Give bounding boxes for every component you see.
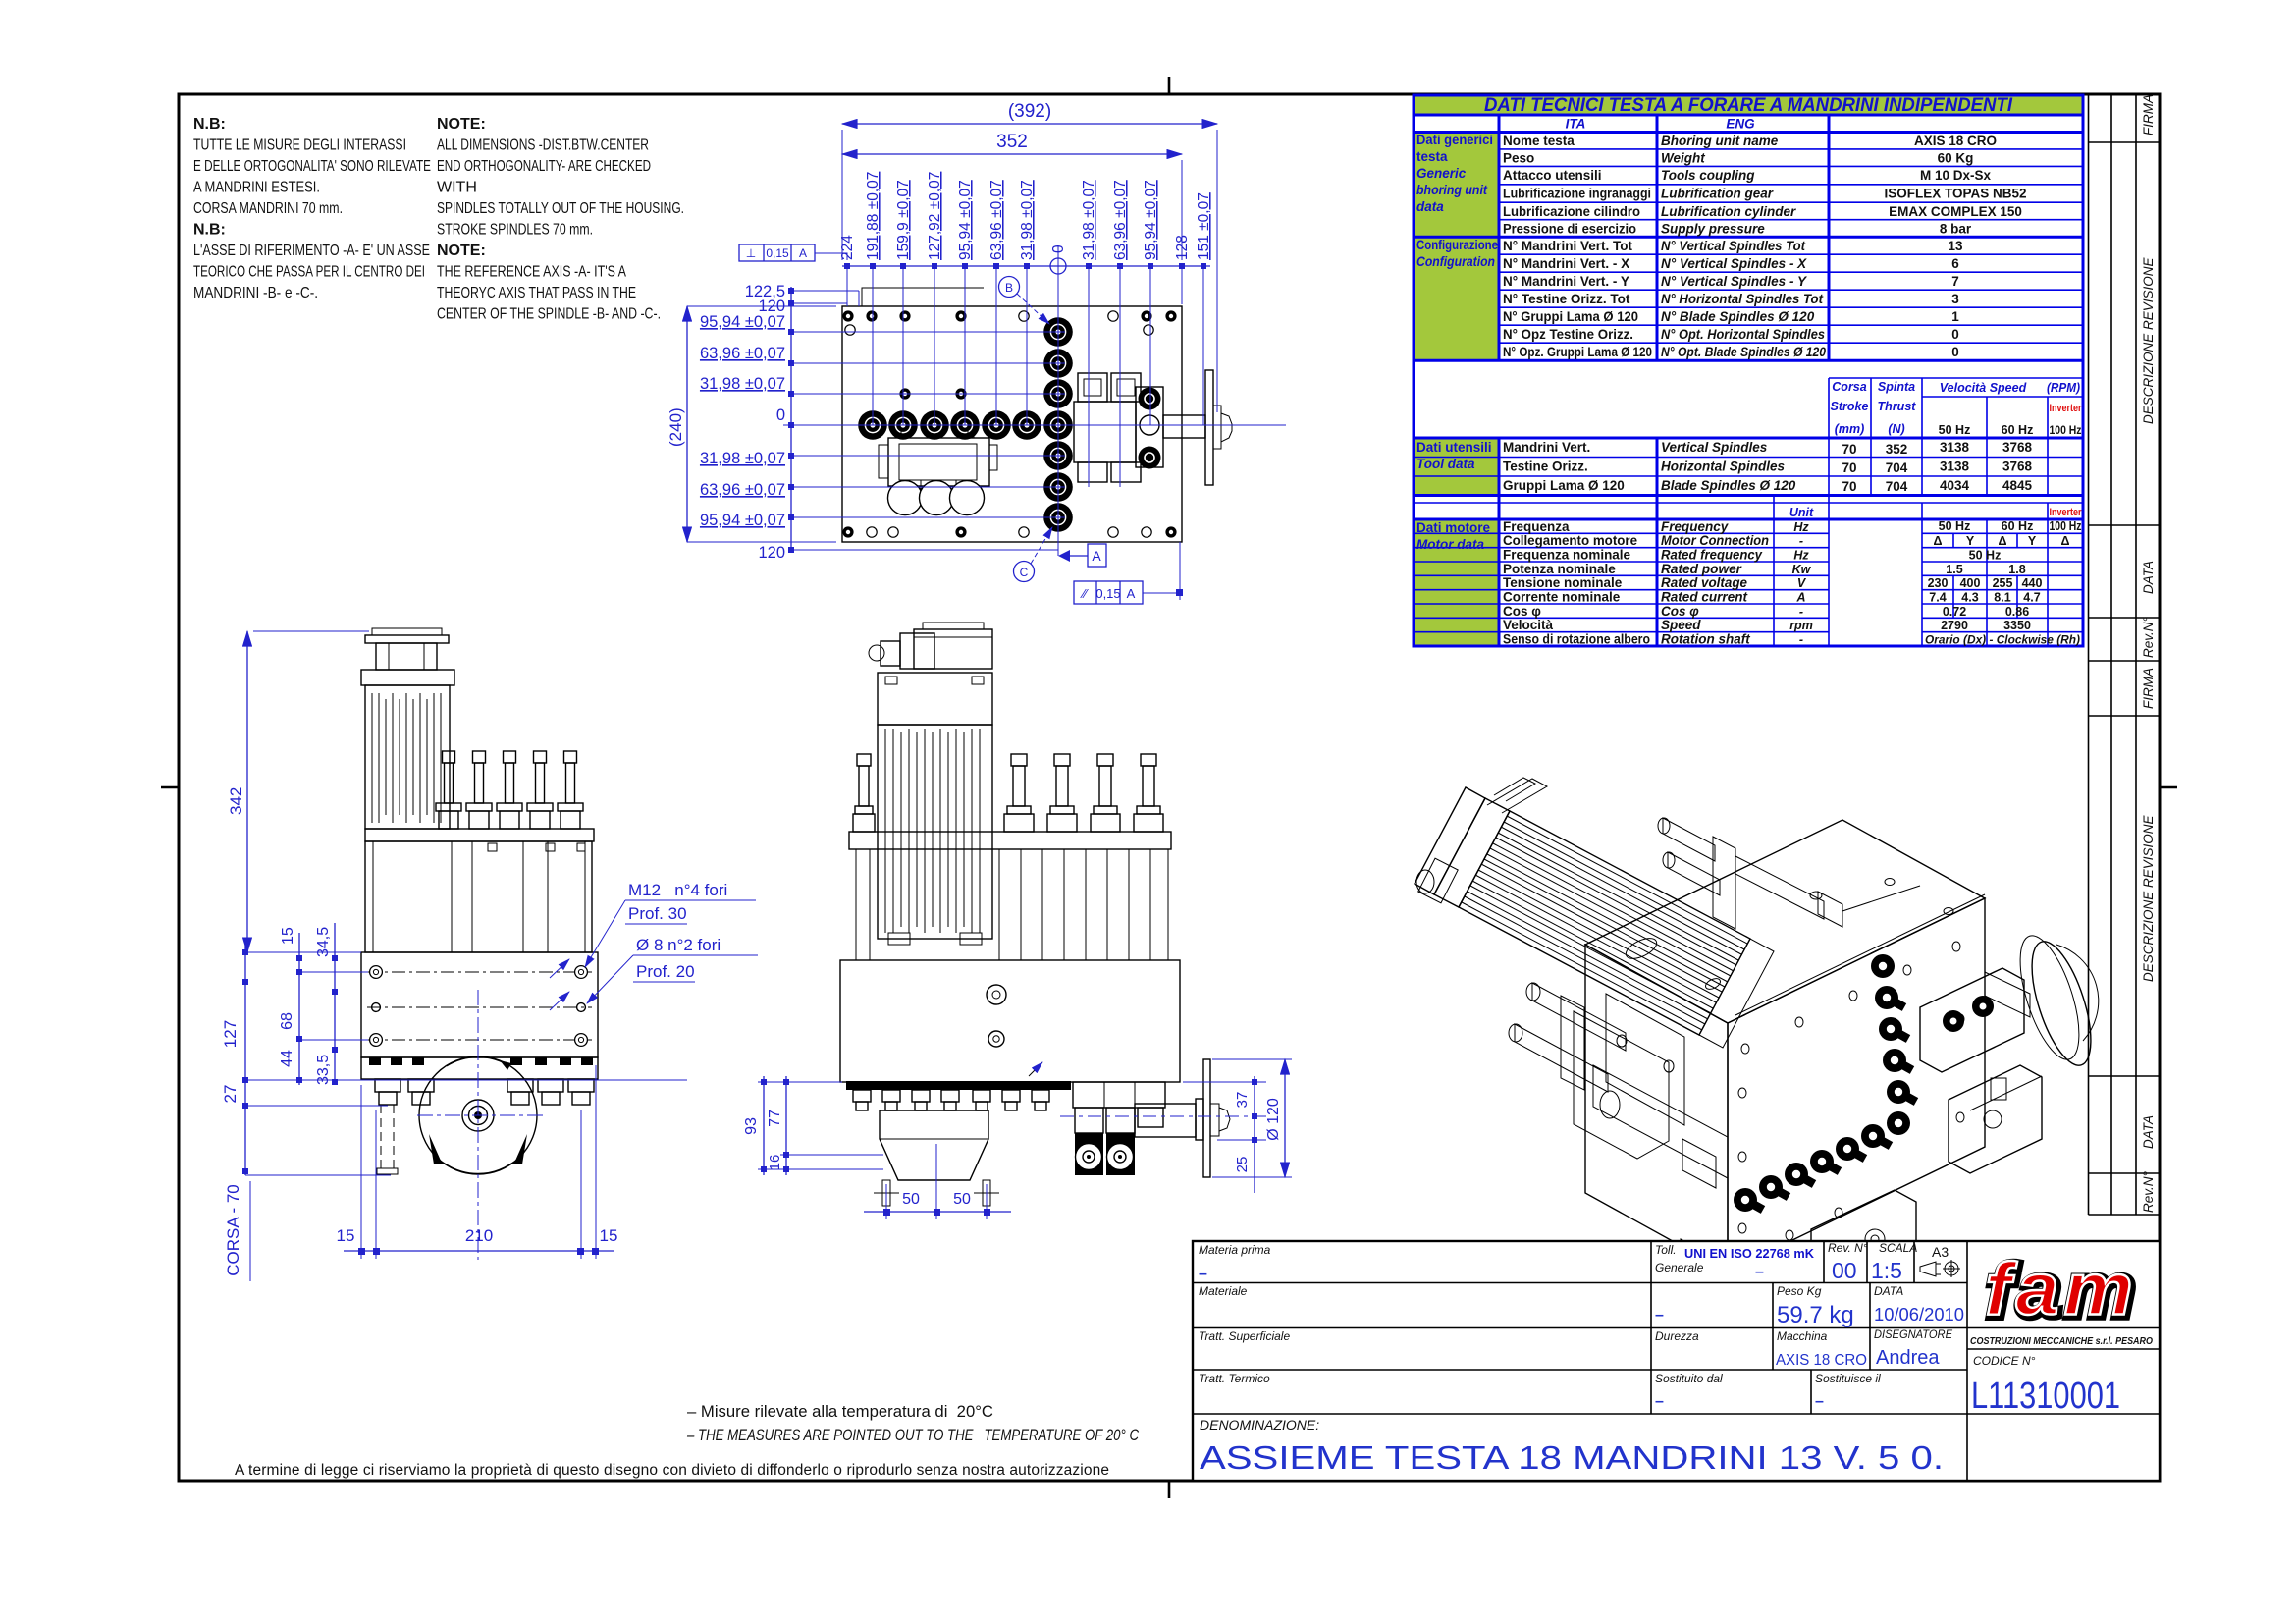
svg-text:Potenza nominale: Potenza nominale [1503, 562, 1616, 576]
svg-text:Rev.N°: Rev.N° [2141, 616, 2156, 658]
svg-text:Attacco utensili: Attacco utensili [1503, 168, 1602, 183]
svg-text:Supply pressure: Supply pressure [1661, 222, 1765, 237]
svg-text:4845: 4845 [2002, 478, 2033, 493]
svg-text:Ø 8 n°2 fori: Ø 8 n°2 fori [636, 936, 721, 954]
svg-text:4034: 4034 [1940, 478, 1970, 493]
svg-text:Y: Y [1966, 534, 1975, 548]
svg-text:0.86: 0.86 [2005, 605, 2029, 619]
svg-text:CORSA MANDRINI 70 mm.: CORSA MANDRINI 70 mm. [193, 200, 343, 217]
svg-text:3768: 3768 [2002, 440, 2033, 455]
svg-text:10/06/2010: 10/06/2010 [1874, 1305, 1964, 1325]
svg-text:Thrust: Thrust [1878, 400, 1917, 413]
svg-text:352: 352 [1886, 442, 1908, 457]
svg-text:⊥: ⊥ [746, 246, 756, 260]
svg-text:N° Mandrini Vert. Tot: N° Mandrini Vert. Tot [1503, 239, 1633, 253]
svg-text:0: 0 [1951, 345, 1959, 359]
svg-text:L'ASSE DI RIFERIMENTO -A- E' U: L'ASSE DI RIFERIMENTO -A- E' UN ASSE [193, 243, 430, 259]
svg-text:Sostituito dal: Sostituito dal [1655, 1372, 1723, 1385]
svg-text:00: 00 [1832, 1258, 1857, 1283]
svg-text:63,96 ±0,07: 63,96 ±0,07 [700, 345, 785, 362]
svg-text:Δ: Δ [2061, 534, 2070, 548]
svg-text:8.1: 8.1 [1994, 591, 2010, 605]
svg-text:70: 70 [1842, 479, 1856, 494]
svg-text:Y: Y [2028, 534, 2037, 548]
svg-text:N° Gruppi Lama Ø 120: N° Gruppi Lama Ø 120 [1503, 309, 1638, 324]
svg-text:Inverter: Inverter [2050, 507, 2083, 518]
svg-text:THE REFERENCE AXIS -A- IT'S A: THE REFERENCE AXIS -A- IT'S A [437, 264, 626, 281]
svg-text:Frequenza: Frequenza [1503, 519, 1570, 534]
svg-text:159,9 ±0,07: 159,9 ±0,07 [895, 180, 912, 260]
svg-text:Δ: Δ [1999, 534, 2007, 548]
svg-text:31,98 ±0,07: 31,98 ±0,07 [700, 450, 785, 467]
svg-text:100 Hz: 100 Hz [2050, 519, 2082, 533]
svg-text:CENTER OF THE SPINDLE -B- AND: CENTER OF THE SPINDLE -B- AND -C-. [437, 306, 661, 323]
svg-text:0,15: 0,15 [1095, 586, 1120, 601]
svg-text:N° Opz Testine Orizz.: N° Opz Testine Orizz. [1503, 327, 1633, 342]
svg-text:Motor data: Motor data [1416, 537, 1484, 552]
svg-text:63,96 ±0,07: 63,96 ±0,07 [1112, 180, 1129, 260]
svg-text:-: - [1799, 534, 1803, 548]
svg-text:(mm): (mm) [1835, 422, 1865, 436]
svg-text:60 Hz: 60 Hz [2002, 423, 2034, 437]
svg-text:Rotation shaft: Rotation shaft [1661, 632, 1750, 647]
svg-text:210: 210 [465, 1226, 493, 1245]
svg-text:Prof. 30: Prof. 30 [628, 904, 687, 923]
svg-text:DESCRIZIONE REVISIONE: DESCRIZIONE REVISIONE [2141, 814, 2156, 982]
svg-text:Configuration: Configuration [1416, 254, 1495, 269]
svg-text:Dati motore: Dati motore [1416, 520, 1491, 535]
svg-text:77: 77 [767, 1110, 783, 1127]
svg-text:95,94 ±0,07: 95,94 ±0,07 [700, 313, 785, 331]
svg-text:Rev. N°: Rev. N° [1828, 1241, 1868, 1255]
svg-text:–: – [1655, 1307, 1664, 1324]
svg-text:ITA: ITA [1566, 117, 1586, 132]
svg-text:Velocità Speed: Velocità Speed [1940, 381, 2027, 395]
svg-text:Inverter: Inverter [2050, 403, 2083, 414]
svg-text:Lubrification gear: Lubrification gear [1661, 187, 1774, 201]
svg-text:–: – [1815, 1393, 1824, 1410]
svg-text:Peso Kg: Peso Kg [1777, 1284, 1822, 1298]
svg-text:50 Hz: 50 Hz [1969, 549, 2002, 563]
svg-text:8 bar: 8 bar [1940, 222, 1972, 237]
svg-text:95,94 ±0,07: 95,94 ±0,07 [700, 512, 785, 529]
svg-text:Mandrini Vert.: Mandrini Vert. [1503, 440, 1590, 455]
svg-text:Ø 120: Ø 120 [1265, 1098, 1282, 1141]
svg-text:(392): (392) [1008, 101, 1051, 122]
svg-text:0: 0 [776, 406, 785, 424]
svg-text:N° Vertical Spindles Tot: N° Vertical Spindles Tot [1661, 239, 1805, 253]
svg-text:AXIS 18 CRO: AXIS 18 CRO [1914, 134, 1997, 148]
svg-text:3: 3 [1951, 292, 1959, 306]
svg-text:3138: 3138 [1940, 440, 1970, 455]
svg-text:ISOFLEX TOPAS NB52: ISOFLEX TOPAS NB52 [1884, 187, 2026, 201]
svg-text:Lubrificazione cilindro: Lubrificazione cilindro [1503, 204, 1640, 219]
svg-text:Tratt. Superficiale: Tratt. Superficiale [1199, 1329, 1290, 1343]
svg-text:A: A [1127, 586, 1136, 601]
svg-text:–: – [1655, 1393, 1664, 1410]
svg-text:15: 15 [337, 1226, 355, 1245]
svg-text:DATA: DATA [1874, 1284, 1903, 1298]
svg-text:68: 68 [279, 1012, 295, 1030]
svg-text:0: 0 [1050, 244, 1067, 253]
svg-text:-: - [1799, 633, 1803, 647]
svg-text:151 ±0,07: 151 ±0,07 [1196, 192, 1212, 260]
svg-text:34,5: 34,5 [315, 927, 332, 957]
svg-text:Andrea: Andrea [1876, 1347, 1940, 1369]
svg-text:Generale: Generale [1655, 1261, 1704, 1274]
svg-text:Rated voltage: Rated voltage [1661, 575, 1747, 590]
svg-text:ASSIEME TESTA 18 MANDRINI 13 V: ASSIEME TESTA 18 MANDRINI 13 V. 5 0. [1200, 1439, 1944, 1476]
svg-text:4.7: 4.7 [2023, 591, 2040, 605]
svg-text:0: 0 [1951, 327, 1959, 342]
svg-text:Kw: Kw [1792, 563, 1812, 576]
svg-text:MANDRINI -B- e -C-.: MANDRINI -B- e -C-. [193, 285, 318, 301]
svg-text:50: 50 [902, 1191, 920, 1208]
svg-text:100 Hz: 100 Hz [2050, 425, 2082, 437]
svg-text:DENOMINAZIONE:: DENOMINAZIONE: [1200, 1417, 1319, 1433]
svg-text:60 Hz: 60 Hz [2002, 519, 2034, 533]
svg-text:B: B [1005, 281, 1013, 295]
svg-text:Tools coupling: Tools coupling [1661, 168, 1755, 183]
svg-text:6: 6 [1951, 256, 1959, 271]
svg-text:Dati generici: Dati generici [1416, 133, 1493, 147]
svg-text:testa: testa [1416, 149, 1448, 164]
svg-text:WITH: WITH [437, 180, 477, 196]
svg-text:Bhoring unit name: Bhoring unit name [1661, 134, 1779, 148]
svg-text:13: 13 [1948, 239, 1963, 253]
svg-text:255: 255 [1993, 576, 2013, 590]
svg-text:Materiale: Materiale [1199, 1284, 1248, 1298]
svg-text:A termine di legge ci riservia: A termine di legge ci riserviamo la prop… [235, 1462, 1109, 1479]
svg-text:95,94 ±0,07: 95,94 ±0,07 [1143, 180, 1159, 260]
svg-text:Vertical Spindles: Vertical Spindles [1661, 440, 1768, 455]
svg-text:37: 37 [1234, 1092, 1251, 1109]
svg-text:END ORTHOGONALITY- ARE CHECKED: END ORTHOGONALITY- ARE CHECKED [437, 158, 651, 175]
svg-text:Sostituisce il: Sostituisce il [1815, 1372, 1881, 1385]
svg-text:rpm: rpm [1789, 619, 1813, 632]
svg-text:Rated power: Rated power [1661, 562, 1742, 576]
svg-text:N.B:: N.B: [193, 116, 226, 133]
svg-text:A MANDRINI ESTESI.: A MANDRINI ESTESI. [193, 180, 320, 196]
svg-text:bhoring unit: bhoring unit [1416, 183, 1487, 197]
svg-text:TUTTE LE MISURE DEGLI INTERASS: TUTTE LE MISURE DEGLI INTERASSI [193, 137, 406, 154]
svg-text:N° Mandrini Vert. - X: N° Mandrini Vert. - X [1503, 256, 1629, 271]
svg-text:A3: A3 [1932, 1244, 1949, 1260]
svg-text:N° Opt. Blade Spindles Ø 120: N° Opt. Blade Spindles Ø 120 [1661, 345, 1826, 359]
svg-text:2790: 2790 [1941, 619, 1968, 632]
svg-text:191,88 ±0,07: 191,88 ±0,07 [865, 172, 881, 260]
svg-text:ALL DIMENSIONS -DIST.BTW.CENTE: ALL DIMENSIONS -DIST.BTW.CENTER [437, 137, 649, 154]
svg-text:Spinta: Spinta [1878, 380, 1915, 394]
svg-text:DISEGNATORE: DISEGNATORE [1874, 1327, 1953, 1341]
svg-text:–: – [1755, 1264, 1764, 1280]
svg-text:M12 n°4 fori: M12 n°4 fori [628, 881, 727, 899]
svg-text:Corsa: Corsa [1832, 380, 1866, 394]
svg-text:L11310001: L11310001 [1971, 1376, 2120, 1417]
svg-text:DATA: DATA [2141, 1115, 2156, 1149]
svg-text:Dati utensili: Dati utensili [1416, 440, 1492, 455]
svg-text:Senso di rotazione albero: Senso di rotazione albero [1503, 632, 1650, 647]
svg-text:EMAX COMPLEX 150: EMAX COMPLEX 150 [1889, 204, 2022, 219]
svg-text:25: 25 [1234, 1157, 1251, 1173]
svg-text:0.72: 0.72 [1943, 605, 1966, 619]
svg-text:SPINDLES TOTALLY OUT OF THE HO: SPINDLES TOTALLY OUT OF THE HOUSING. [437, 200, 684, 217]
svg-text:Peso: Peso [1503, 151, 1534, 166]
svg-text:70: 70 [1842, 460, 1856, 475]
svg-text:data: data [1416, 199, 1444, 214]
svg-text:63,96 ±0,07: 63,96 ±0,07 [988, 180, 1005, 260]
svg-text:Frequency: Frequency [1661, 519, 1730, 534]
svg-text:Rated frequency: Rated frequency [1661, 548, 1763, 563]
svg-text:Durezza: Durezza [1655, 1329, 1699, 1343]
svg-text:DESCRIZIONE REVISIONE: DESCRIZIONE REVISIONE [2141, 256, 2156, 424]
svg-text:Testine Orizz.: Testine Orizz. [1503, 460, 1588, 474]
svg-text:C: C [1020, 566, 1029, 579]
svg-text:Velocità: Velocità [1503, 618, 1554, 632]
svg-text:15: 15 [600, 1226, 618, 1245]
svg-text:Toll.: Toll. [1655, 1243, 1677, 1257]
svg-text:(RPM): (RPM) [2047, 381, 2080, 395]
svg-text:Tool data: Tool data [1416, 457, 1475, 471]
svg-text:–: – [1199, 1266, 1207, 1282]
svg-text:Gruppi Lama Ø 120: Gruppi Lama Ø 120 [1503, 478, 1625, 493]
svg-text:-: - [1799, 605, 1803, 619]
svg-text:95,94 ±0,07: 95,94 ±0,07 [957, 180, 974, 260]
svg-text:Hz: Hz [1793, 549, 1809, 563]
svg-text:50 Hz: 50 Hz [1939, 519, 1971, 533]
svg-text:N° Mandrini Vert. - Y: N° Mandrini Vert. - Y [1503, 274, 1629, 289]
svg-text:N° Vertical Spindles - X: N° Vertical Spindles - X [1661, 256, 1807, 271]
svg-text:Frequenza nominale: Frequenza nominale [1503, 548, 1630, 563]
svg-text:N° Opz. Gruppi Lama Ø 120: N° Opz. Gruppi Lama Ø 120 [1503, 345, 1652, 359]
svg-text:16: 16 [767, 1155, 783, 1171]
svg-text:Prof. 20: Prof. 20 [636, 962, 695, 981]
svg-text:COSTRUZIONI MECCANICHE s.r.l.: COSTRUZIONI MECCANICHE s.r.l. PESARO [1970, 1335, 2153, 1347]
svg-text:Cos φ: Cos φ [1661, 604, 1699, 619]
svg-text:31,98 ±0,07: 31,98 ±0,07 [1019, 180, 1036, 260]
svg-text:A: A [1795, 591, 1805, 605]
svg-text:SCALA: SCALA [1879, 1241, 1917, 1255]
svg-text:TEORICO CHE PASSA PER IL CENTR: TEORICO CHE PASSA PER IL CENTRO DEI [193, 264, 425, 281]
svg-text:Unit: Unit [1789, 506, 1814, 519]
svg-text:M 10 Dx-Sx: M 10 Dx-Sx [1920, 168, 1992, 183]
svg-text:27: 27 [221, 1085, 240, 1104]
svg-text:THEORYC AXIS THAT PASS IN THE: THEORYC AXIS THAT PASS IN THE [437, 285, 636, 301]
svg-text:1: 1 [1951, 309, 1959, 324]
svg-text:Cos φ: Cos φ [1503, 604, 1541, 619]
svg-text:Pressione di esercizio: Pressione di esercizio [1503, 222, 1636, 237]
svg-text:N° Vertical Spindles - Y: N° Vertical Spindles - Y [1661, 274, 1808, 289]
svg-text:– THE MEASURES ARE POINTED OUT: – THE MEASURES ARE POINTED OUT TO THE TE… [686, 1426, 1139, 1444]
svg-text:33,5: 33,5 [315, 1055, 332, 1085]
svg-text:7: 7 [1951, 274, 1959, 289]
svg-text:E DELLE ORTOGONALITA' SONO RIL: E DELLE ORTOGONALITA' SONO RILEVATE [193, 158, 431, 175]
svg-text:15: 15 [280, 927, 296, 945]
svg-text:N° Horizontal Spindles Tot: N° Horizontal Spindles Tot [1661, 292, 1823, 306]
svg-text:4.3: 4.3 [1961, 591, 1978, 605]
svg-text:1.8: 1.8 [2008, 563, 2025, 576]
svg-text:59.7 kg: 59.7 kg [1777, 1302, 1854, 1328]
svg-text:Δ: Δ [1934, 534, 1943, 548]
svg-text:ENG: ENG [1726, 117, 1755, 132]
svg-text:DATA: DATA [2141, 561, 2156, 594]
svg-text:Lubrification cylinder: Lubrification cylinder [1661, 204, 1796, 219]
svg-text:3350: 3350 [2003, 619, 2031, 632]
svg-text:(240): (240) [667, 407, 685, 447]
svg-text:127: 127 [221, 1020, 240, 1048]
svg-text:Nome testa: Nome testa [1503, 134, 1575, 148]
svg-text:Blade Spindles Ø 120: Blade Spindles Ø 120 [1661, 478, 1796, 493]
svg-text:N.B:: N.B: [193, 222, 226, 239]
svg-text:60 Kg: 60 Kg [1938, 151, 1974, 166]
svg-text:Motor Connection: Motor Connection [1661, 533, 1769, 548]
svg-text:127,92 ±0,07: 127,92 ±0,07 [927, 172, 943, 260]
svg-text:N° Testine Orizz. Tot: N° Testine Orizz. Tot [1503, 292, 1630, 306]
svg-text:N° Opt. Horizontal Spindles: N° Opt. Horizontal Spindles [1661, 327, 1825, 342]
svg-text:CORSA - 70: CORSA - 70 [224, 1184, 242, 1276]
svg-text:1.5: 1.5 [1946, 563, 1962, 576]
svg-text:Tratt. Termico: Tratt. Termico [1199, 1372, 1270, 1385]
svg-text:A: A [1092, 548, 1101, 564]
svg-text:Tensione nominale: Tensione nominale [1503, 575, 1623, 590]
svg-text:70: 70 [1842, 442, 1856, 457]
svg-text:400: 400 [1960, 576, 1981, 590]
svg-text:704: 704 [1886, 479, 1908, 494]
svg-text:128: 128 [1174, 235, 1191, 260]
svg-text:Horizontal Spindles: Horizontal Spindles [1661, 460, 1786, 474]
svg-text:63,96 ±0,07: 63,96 ±0,07 [700, 481, 785, 499]
svg-text:342: 342 [227, 787, 245, 815]
svg-text:Rev.N°: Rev.N° [2141, 1170, 2156, 1213]
svg-text:Hz: Hz [1793, 520, 1809, 534]
svg-text:Collegamento motore: Collegamento motore [1503, 533, 1637, 548]
svg-text:A: A [799, 246, 807, 260]
svg-text:Stroke: Stroke [1831, 400, 1869, 413]
svg-text:1:5: 1:5 [1871, 1258, 1902, 1283]
svg-text:fam: fam [1985, 1248, 2137, 1330]
svg-text:7.4: 7.4 [1929, 591, 1946, 605]
svg-text:(N): (N) [1888, 422, 1904, 436]
svg-text:Corrente nominale: Corrente nominale [1503, 590, 1621, 605]
svg-text:Generic: Generic [1416, 166, 1467, 181]
svg-text:44: 44 [279, 1050, 295, 1067]
svg-text:704: 704 [1886, 460, 1908, 475]
svg-text:3138: 3138 [1940, 460, 1970, 474]
svg-text:Orario (Dx) - Clockwise (Rh): Orario (Dx) - Clockwise (Rh) [1925, 633, 2080, 647]
svg-text:NOTE:: NOTE: [437, 116, 486, 133]
svg-text:3768: 3768 [2002, 460, 2033, 474]
svg-text:Rated current: Rated current [1661, 590, 1747, 605]
svg-text:50 Hz: 50 Hz [1939, 423, 1971, 437]
svg-text:NOTE:: NOTE: [437, 243, 486, 259]
svg-text:50: 50 [953, 1191, 971, 1208]
svg-text:Configurazione: Configurazione [1416, 238, 1498, 252]
svg-text:STROKE SPINDLES 70 mm.: STROKE SPINDLES 70 mm. [437, 222, 593, 239]
svg-text:Macchina: Macchina [1777, 1329, 1828, 1343]
svg-text:FIRMA: FIRMA [2141, 668, 2156, 709]
svg-text:31,98 ±0,07: 31,98 ±0,07 [700, 375, 785, 393]
svg-text:Lubrificazione ingranaggi: Lubrificazione ingranaggi [1503, 187, 1651, 201]
svg-text:Materia prima: Materia prima [1199, 1243, 1271, 1257]
svg-text:CODICE N°: CODICE N° [1973, 1354, 2036, 1368]
svg-text:Speed: Speed [1661, 618, 1701, 632]
svg-text:120: 120 [758, 544, 785, 562]
svg-text:AXIS 18 CRO: AXIS 18 CRO [1776, 1352, 1867, 1369]
svg-text:230: 230 [1928, 576, 1949, 590]
svg-text:0,15: 0,15 [766, 246, 789, 260]
svg-text:N° Blade Spindles Ø 120: N° Blade Spindles Ø 120 [1661, 309, 1815, 324]
svg-text:– Misure rilevate alla tempera: – Misure rilevate alla temperatura di 20… [687, 1402, 993, 1421]
svg-text:FIRMA: FIRMA [2141, 94, 2156, 135]
svg-text:440: 440 [2022, 576, 2043, 590]
svg-text:Weight: Weight [1661, 151, 1705, 166]
svg-text:DATI TECNICI TESTA A FORARE A: DATI TECNICI TESTA A FORARE A MANDRINI I… [1484, 95, 2013, 116]
svg-text:93: 93 [743, 1117, 760, 1135]
svg-text:352: 352 [996, 132, 1028, 152]
svg-text:UNI EN ISO 22768 mK: UNI EN ISO 22768 mK [1684, 1247, 1814, 1261]
svg-text:31,98 ±0,07: 31,98 ±0,07 [1081, 180, 1097, 260]
